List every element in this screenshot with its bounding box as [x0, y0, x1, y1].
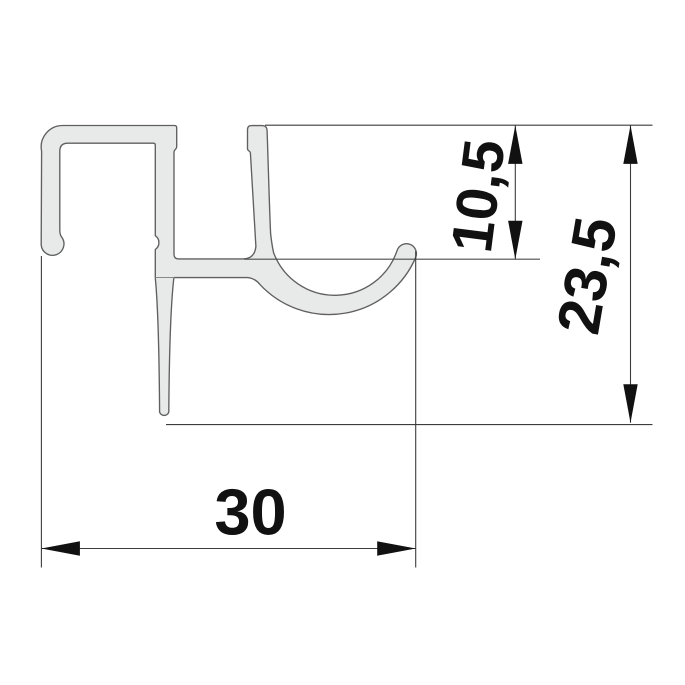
svg-text:30: 30 — [214, 476, 286, 549]
svg-text:23,5: 23,5 — [544, 212, 630, 338]
svg-text:10,5: 10,5 — [439, 136, 518, 256]
